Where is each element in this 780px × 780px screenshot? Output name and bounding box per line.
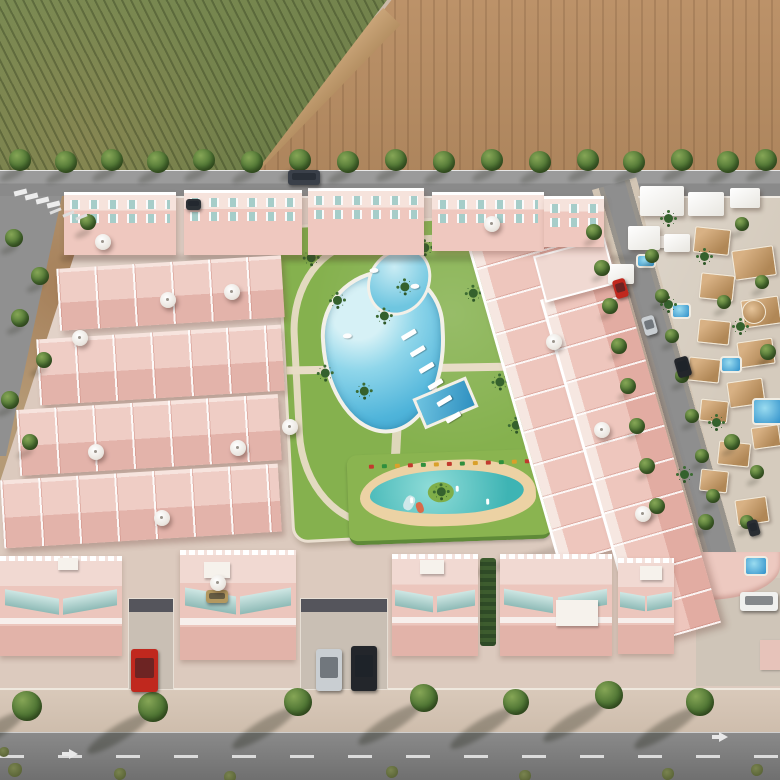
tree-sidewalk (12, 691, 42, 721)
roof-box-5 (58, 558, 78, 570)
tree-road-top (55, 151, 77, 173)
parasol (282, 419, 298, 435)
kids-fence-post (473, 461, 478, 465)
tree-villas (698, 514, 714, 530)
roof-railing (180, 550, 296, 555)
roof-box-2 (420, 560, 444, 574)
villa-roof-2 (731, 245, 777, 281)
car-glass (355, 655, 374, 677)
villa-palm-icon (680, 470, 689, 479)
tree-left-road (22, 434, 38, 450)
villa-white-4 (628, 226, 660, 250)
tree-road-top (671, 149, 693, 171)
car-glass (135, 658, 154, 679)
parasol (210, 575, 226, 591)
roof-box-4 (640, 566, 662, 580)
tree-left-road (1, 391, 19, 409)
car-glass (745, 596, 772, 605)
apartment-block-2 (184, 190, 302, 255)
apartment-window-row (314, 210, 418, 219)
tree-street-west (639, 458, 655, 474)
tree-villas (750, 465, 764, 479)
road-arrow (62, 752, 74, 756)
villa-roof-5 (697, 318, 731, 345)
roadside-bush (224, 771, 236, 780)
kids-pool-zone (346, 449, 551, 546)
tree-road-top (289, 149, 311, 171)
villa-pool-4 (752, 398, 780, 425)
tree-sidewalk (410, 684, 438, 712)
hedge-alley (480, 558, 496, 646)
tree-sidewalk (503, 689, 529, 715)
kids-slide-blue (401, 494, 417, 512)
apartment-window-row (314, 196, 418, 205)
tree-street-west (602, 298, 618, 314)
tree-street-east (706, 489, 720, 503)
apartment-window-row (190, 212, 296, 221)
tree-street-west (649, 498, 665, 514)
roof-railing (618, 558, 674, 563)
tree-road-top (755, 149, 777, 171)
tree-street-east (695, 449, 709, 463)
bather-figure (486, 499, 489, 505)
car-glass (320, 657, 339, 677)
tree-road-top (481, 149, 503, 171)
car-dark-top-blocks (186, 199, 201, 210)
kids-pool-beach-ring (359, 457, 537, 529)
villa-palm-icon (664, 214, 673, 223)
tree-street-east (665, 329, 679, 343)
tree-left-road (5, 229, 23, 247)
glass-canopy-right (437, 589, 475, 612)
villa-round-tower (742, 300, 766, 324)
utility-box (760, 640, 780, 670)
glass-canopy-right (63, 589, 117, 614)
parasol (635, 506, 651, 522)
kids-pool-water (369, 467, 524, 516)
car-red-driveway (131, 649, 158, 692)
villa-palm-icon (712, 418, 721, 427)
townhouse-front-2 (180, 550, 296, 660)
villa-pool-2 (671, 303, 691, 319)
kids-fence-post (395, 464, 400, 468)
tree-sidewalk (284, 688, 312, 716)
facade-band (392, 617, 478, 623)
car-glass (748, 522, 758, 532)
kids-fence-post (369, 465, 374, 469)
roof-box-3 (556, 600, 598, 626)
tree-road-top (101, 149, 123, 171)
road-center-dashes (0, 755, 780, 758)
kids-fence-post (408, 463, 413, 467)
roof-railing (392, 554, 478, 559)
parasol (88, 444, 104, 460)
tree-villas (724, 434, 740, 450)
tree-villas (760, 344, 776, 360)
kids-slide-red (415, 501, 425, 514)
tree-street-east (685, 409, 699, 423)
tree-sidewalk (686, 688, 714, 716)
tree-street-west (611, 338, 627, 354)
tree-street-west (594, 260, 610, 276)
tree-road-top (9, 149, 31, 171)
tree-road-top (147, 151, 169, 173)
tree-road-top (385, 149, 407, 171)
glass-canopy-right (647, 592, 672, 612)
tree-street-west (586, 224, 602, 240)
apartment-window-row (550, 204, 598, 213)
tree-road-top (337, 151, 359, 173)
parasol (160, 292, 176, 308)
car-glass (614, 282, 626, 293)
tree-road-top (623, 151, 645, 173)
glass-canopy-left (504, 588, 553, 613)
glass-canopy-left (5, 589, 59, 614)
car-glass (188, 201, 199, 206)
villa-roof-7 (687, 356, 721, 383)
tree-left-road (36, 352, 52, 368)
parasol (484, 216, 500, 232)
tree-sidewalk (138, 692, 168, 722)
villa-pool-3 (720, 356, 742, 373)
tree-road-top (577, 149, 599, 171)
tree-villas (755, 275, 769, 289)
road-arrow (712, 735, 724, 739)
glass-canopy-right (240, 587, 291, 614)
kids-fence-post (382, 464, 387, 468)
townhouse-front-1 (0, 556, 122, 656)
tree-street-east (645, 249, 659, 263)
facade-band (0, 618, 122, 624)
tree-road-top (529, 151, 551, 173)
villa-white-5 (664, 234, 690, 252)
parasol (72, 330, 88, 346)
villa-pool-5 (744, 556, 768, 576)
car-dark-driveway (351, 646, 377, 691)
car-silver-driveway (316, 649, 342, 691)
tree-street-east (655, 289, 669, 303)
villa-roof-10 (751, 424, 780, 450)
tree-villas (735, 217, 749, 231)
roadside-bush (519, 770, 531, 780)
tree-left-road (11, 309, 29, 327)
glass-canopy-left (395, 589, 433, 612)
roof-railing (500, 554, 612, 559)
parasol (594, 422, 610, 438)
car-beige-court (206, 590, 228, 603)
apartment-window-row (70, 200, 170, 209)
villa-white-3 (730, 188, 760, 208)
kids-fence-post (447, 462, 452, 466)
tree-road-top (717, 151, 739, 173)
car-glass (209, 593, 225, 599)
tree-road-top (241, 151, 263, 173)
kids-fence-post (486, 461, 491, 465)
villa-palm-icon (700, 252, 709, 261)
tree-street-west (620, 378, 636, 394)
tree-left-road (31, 267, 49, 285)
kids-fence-post (421, 463, 426, 467)
parasol (95, 234, 111, 250)
apartment-block-3 (308, 188, 424, 255)
kids-fence-post (512, 460, 517, 464)
tree-road-top (433, 151, 455, 173)
parasol (546, 334, 562, 350)
facade-band (180, 618, 296, 625)
parasol (154, 510, 170, 526)
car-glass (643, 319, 655, 330)
apartment-window-row (190, 198, 296, 207)
tree-road-top (193, 149, 215, 171)
car-white-villa-driveway (740, 592, 778, 611)
bather-figure (456, 486, 459, 492)
villa-white-1 (640, 186, 684, 216)
van-dark-top-road (288, 170, 320, 185)
car-glass (676, 360, 688, 372)
villa-white-2 (688, 192, 724, 216)
tree-villas (717, 295, 731, 309)
facade-band (618, 618, 674, 624)
tree-street-west (629, 418, 645, 434)
car-glass (292, 173, 315, 180)
kids-fence-post (460, 461, 465, 465)
parasol (224, 284, 240, 300)
bather-figure (410, 497, 413, 503)
kids-fence-post (499, 460, 504, 464)
aerial-render-scene (0, 0, 780, 780)
apartment-window-row (438, 200, 538, 209)
kids-fence-post (434, 462, 439, 466)
parasol (230, 440, 246, 456)
villa-palm-icon (736, 322, 745, 331)
villa-roof-1 (693, 226, 732, 256)
tree-sidewalk (595, 681, 623, 709)
glass-canopy-left (620, 592, 645, 612)
